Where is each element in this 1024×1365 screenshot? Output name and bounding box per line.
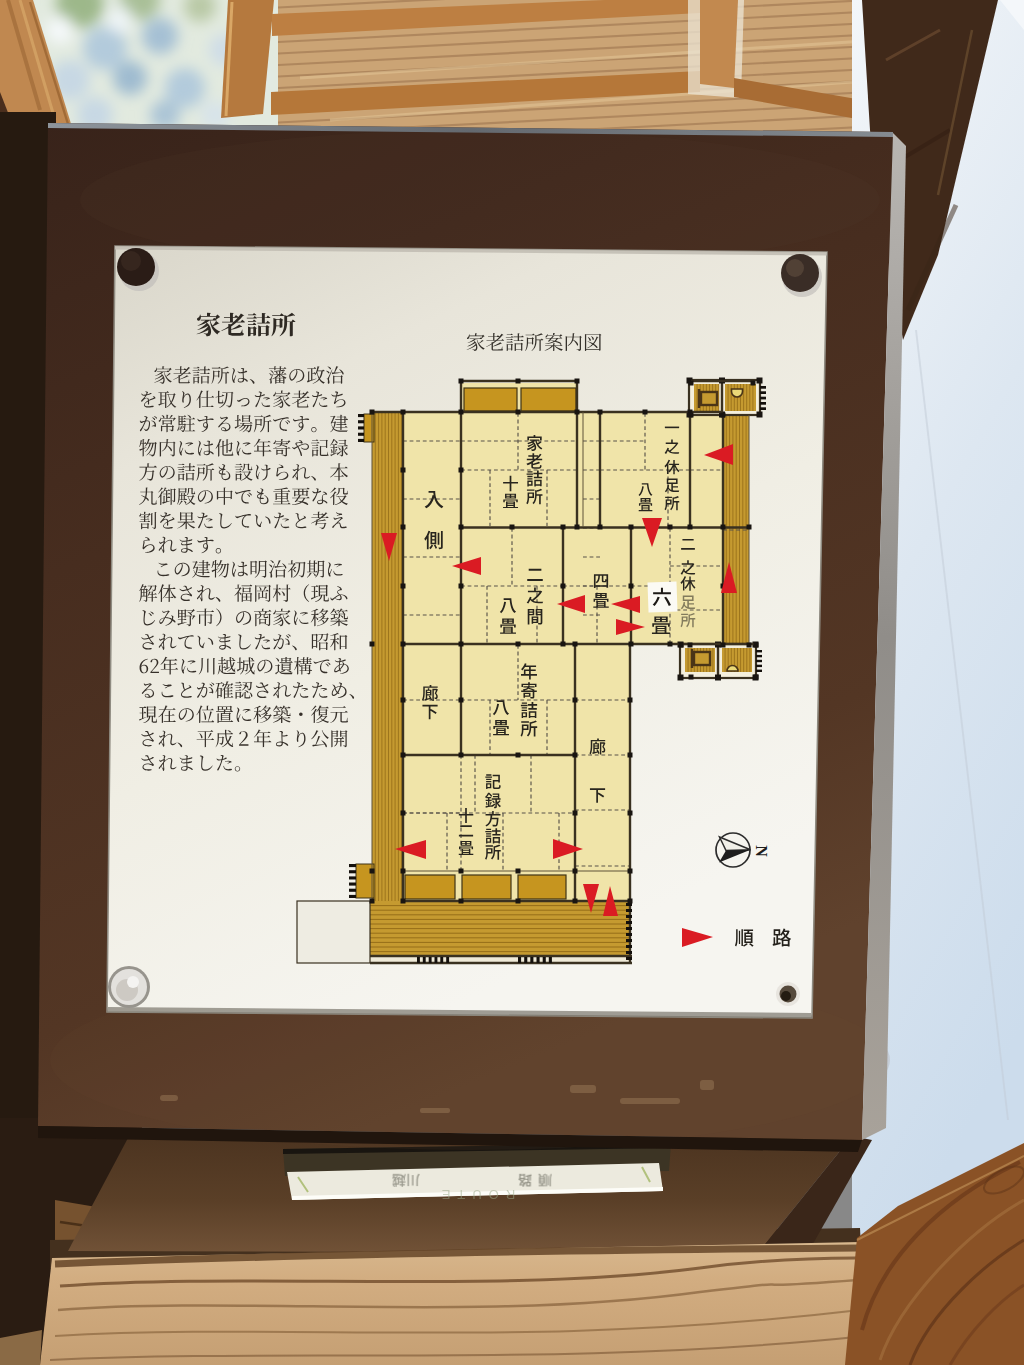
- svg-text:ROUTE: ROUTE: [435, 1187, 516, 1202]
- svg-text:N: N: [753, 845, 770, 857]
